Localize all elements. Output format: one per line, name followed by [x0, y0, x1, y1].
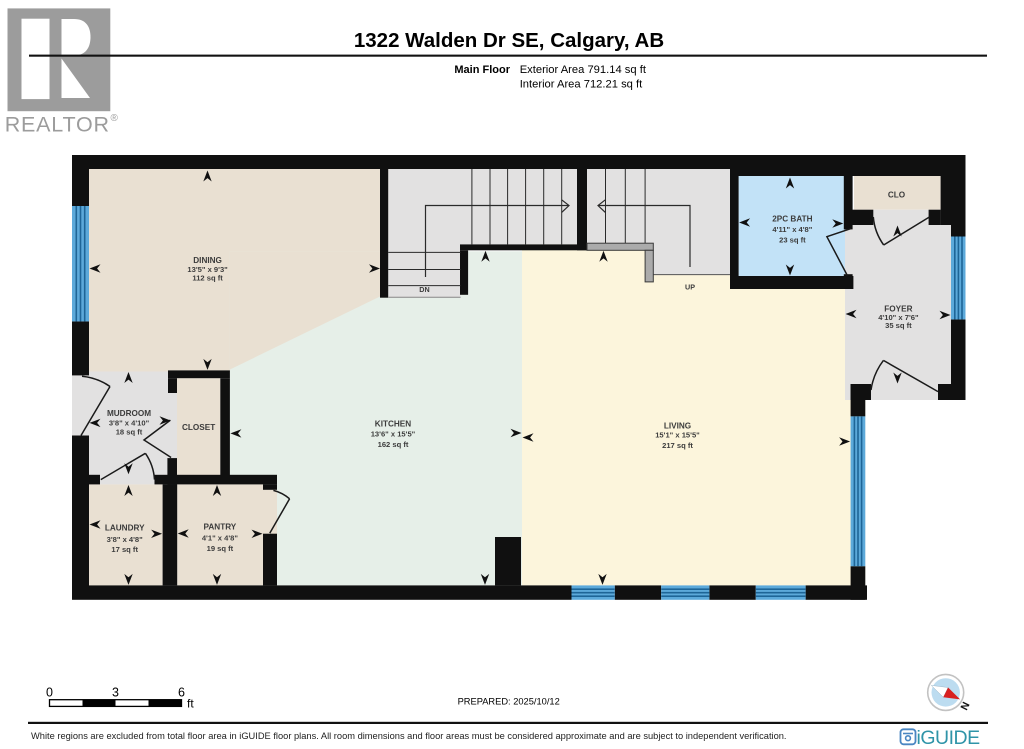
svg-text:4'1" x 4'8": 4'1" x 4'8": [202, 534, 239, 543]
svg-text:3: 3: [112, 686, 119, 700]
svg-text:DN: DN: [419, 285, 429, 294]
svg-text:®: ®: [111, 113, 119, 124]
svg-text:2PC BATH: 2PC BATH: [772, 215, 812, 224]
svg-text:LAUNDRY: LAUNDRY: [105, 524, 145, 533]
svg-text:KITCHEN: KITCHEN: [375, 419, 411, 428]
svg-text:4'11" x 4'8": 4'11" x 4'8": [772, 225, 812, 234]
svg-text:15'1" x 15'5": 15'1" x 15'5": [655, 431, 700, 440]
svg-text:112 sq ft: 112 sq ft: [192, 273, 223, 282]
svg-text:ft: ft: [187, 697, 194, 711]
svg-text:3'8" x 4'8": 3'8" x 4'8": [107, 535, 144, 544]
svg-text:UP: UP: [685, 283, 695, 292]
svg-text:162 sq ft: 162 sq ft: [378, 440, 409, 449]
svg-text:6: 6: [178, 686, 185, 700]
svg-text:iGUIDE: iGUIDE: [917, 727, 981, 749]
svg-text:PREPARED: 2025/10/12: PREPARED: 2025/10/12: [458, 697, 560, 707]
svg-text:Main Floor: Main Floor: [454, 64, 510, 76]
svg-text:CLOSET: CLOSET: [182, 423, 215, 432]
svg-text:18 sq ft: 18 sq ft: [116, 428, 143, 437]
svg-text:Exterior Area 791.14 sq ft: Exterior Area 791.14 sq ft: [520, 64, 647, 76]
svg-text:PANTRY: PANTRY: [204, 522, 237, 531]
svg-text:REALTOR: REALTOR: [5, 113, 110, 137]
svg-text:DINING: DINING: [193, 256, 222, 265]
svg-text:35 sq ft: 35 sq ft: [885, 321, 912, 330]
svg-text:1322 Walden Dr SE, Calgary, AB: 1322 Walden Dr SE, Calgary, AB: [354, 29, 664, 52]
svg-text:LIVING: LIVING: [664, 421, 691, 430]
svg-text:19 sq ft: 19 sq ft: [207, 544, 234, 553]
svg-text:Interior Area 712.21 sq ft: Interior Area 712.21 sq ft: [520, 79, 643, 91]
svg-text:0: 0: [46, 686, 53, 700]
svg-text:13'6" x 15'5": 13'6" x 15'5": [371, 430, 416, 439]
svg-text:3'8" x 4'10": 3'8" x 4'10": [109, 418, 150, 427]
svg-text:White regions are excluded fro: White regions are excluded from total fl…: [31, 731, 787, 741]
svg-text:CLO: CLO: [888, 191, 906, 200]
svg-text:MUDROOM: MUDROOM: [107, 409, 151, 418]
svg-text:17 sq ft: 17 sq ft: [111, 545, 138, 554]
svg-text:23 sq ft: 23 sq ft: [779, 235, 806, 244]
svg-text:217 sq ft: 217 sq ft: [662, 441, 693, 450]
